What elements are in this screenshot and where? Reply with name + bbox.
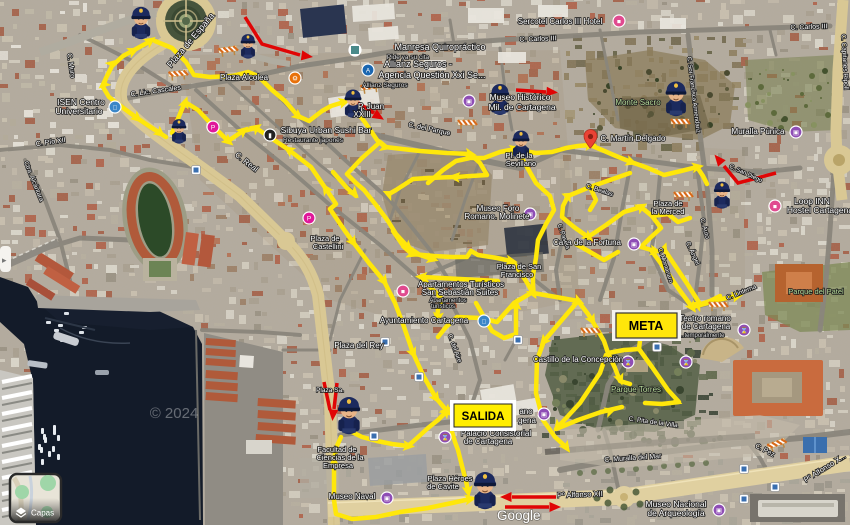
svg-text:P: P [211, 124, 215, 131]
svg-text:SALIDA: SALIDA [462, 411, 505, 423]
svg-text:Plaza del Rey: Plaza del Rey [334, 341, 383, 350]
svg-text:XXIII: XXIII [353, 110, 370, 119]
svg-text:de Cartagena: de Cartagena [682, 322, 731, 331]
svg-text:turísticos: turísticos [431, 304, 455, 310]
svg-text:C. Martín Delgado: C. Martín Delgado [601, 134, 666, 143]
svg-text:▣: ▣ [466, 98, 472, 105]
svg-text:Muralla Púnica: Muralla Púnica [732, 127, 785, 136]
svg-text:Sercotel Carlos III Hotel: Sercotel Carlos III Hotel [518, 17, 603, 26]
svg-text:Romano. Molinete: Romano. Molinete [465, 212, 530, 221]
svg-text:Google: Google [497, 508, 541, 523]
svg-text:Sevillano: Sevillano [506, 159, 536, 168]
svg-text:Museo Histórico: Museo Histórico [490, 92, 551, 102]
svg-text:⌛: ⌛ [624, 358, 632, 366]
svg-text:Plaza Alcolea: Plaza Alcolea [220, 73, 269, 82]
svg-text:▣: ▣ [541, 411, 547, 418]
svg-text:de Arqueología: de Arqueología [647, 508, 704, 518]
svg-text:Agencia Questión Xxi Se...: Agencia Questión Xxi Se... [378, 70, 485, 80]
svg-text:de Cavite: de Cavite [427, 482, 459, 491]
svg-text:▣: ▣ [793, 129, 799, 136]
svg-text:Pº Alfonso XII: Pº Alfonso XII [557, 489, 603, 500]
svg-text:Empresa: Empresa [323, 461, 354, 470]
svg-text:Museo Naval: Museo Naval [329, 492, 376, 501]
svg-text:Parque Torres: Parque Torres [611, 385, 661, 394]
svg-text:⌛: ⌛ [682, 358, 690, 366]
svg-text:▣: ▣ [384, 495, 390, 502]
svg-text:■: ■ [401, 288, 405, 295]
svg-text:gena: gena [518, 416, 536, 425]
svg-text:Sibuya Urban Sushi Bar: Sibuya Urban Sushi Bar [281, 125, 372, 135]
svg-text:ano: ano [519, 407, 533, 416]
svg-text:Parque del Patel: Parque del Patel [788, 287, 844, 296]
svg-text:Plaza Sa.: Plaza Sa. [316, 387, 344, 394]
svg-text:Monte Sacro: Monte Sacro [615, 98, 661, 107]
svg-text:...temporalmente: ...temporalmente [679, 333, 725, 339]
svg-text:▸: ▸ [2, 255, 7, 265]
svg-text:Mil. de Cartagena: Mil. de Cartagena [488, 102, 555, 112]
svg-text:la Merced: la Merced [652, 207, 685, 216]
svg-text:San Sebastián Suites: San Sebastián Suites [422, 288, 499, 297]
svg-text:Allianz Seguros -: Allianz Seguros - [384, 59, 452, 69]
svg-text:⚙: ⚙ [292, 74, 298, 82]
svg-text:▮: ▮ [268, 132, 272, 139]
svg-text:Castellini: Castellini [313, 242, 344, 251]
svg-text:© 2024: © 2024 [150, 405, 199, 422]
svg-text:Allianz Seguros: Allianz Seguros [362, 82, 408, 89]
svg-text:⌛: ⌛ [740, 326, 748, 334]
svg-text:de Cartagena: de Cartagena [464, 437, 513, 446]
svg-text:⌛: ⌛ [441, 433, 449, 441]
svg-text:Capas: Capas [31, 509, 54, 518]
svg-text:Hostel Cartagena: Hostel Cartagena [787, 205, 850, 215]
svg-text:■: ■ [773, 203, 777, 210]
svg-text:■: ■ [617, 18, 621, 25]
svg-text:Francisco: Francisco [501, 270, 534, 279]
svg-text:Ayuntamiento Cartagena: Ayuntamiento Cartagena [380, 316, 469, 325]
svg-text:□: □ [482, 318, 486, 325]
svg-text:P: P [307, 215, 311, 222]
svg-text:META: META [629, 319, 664, 333]
svg-text:A: A [366, 67, 371, 74]
svg-text:Castillo de la Concepción: Castillo de la Concepción [533, 355, 623, 364]
svg-text:▣: ▣ [631, 241, 637, 248]
svg-text:C. Carlos III: C. Carlos III [790, 23, 827, 31]
svg-text:□: □ [113, 104, 117, 111]
svg-text:Manresa Quiropráctico: Manresa Quiropráctico [394, 42, 485, 52]
svg-text:C. Carlos III: C. Carlos III [519, 35, 556, 43]
svg-text:Restaurante japonés: Restaurante japonés [283, 137, 344, 144]
svg-text:▣: ▣ [716, 507, 722, 514]
svg-text:Universitario: Universitario [55, 106, 103, 116]
